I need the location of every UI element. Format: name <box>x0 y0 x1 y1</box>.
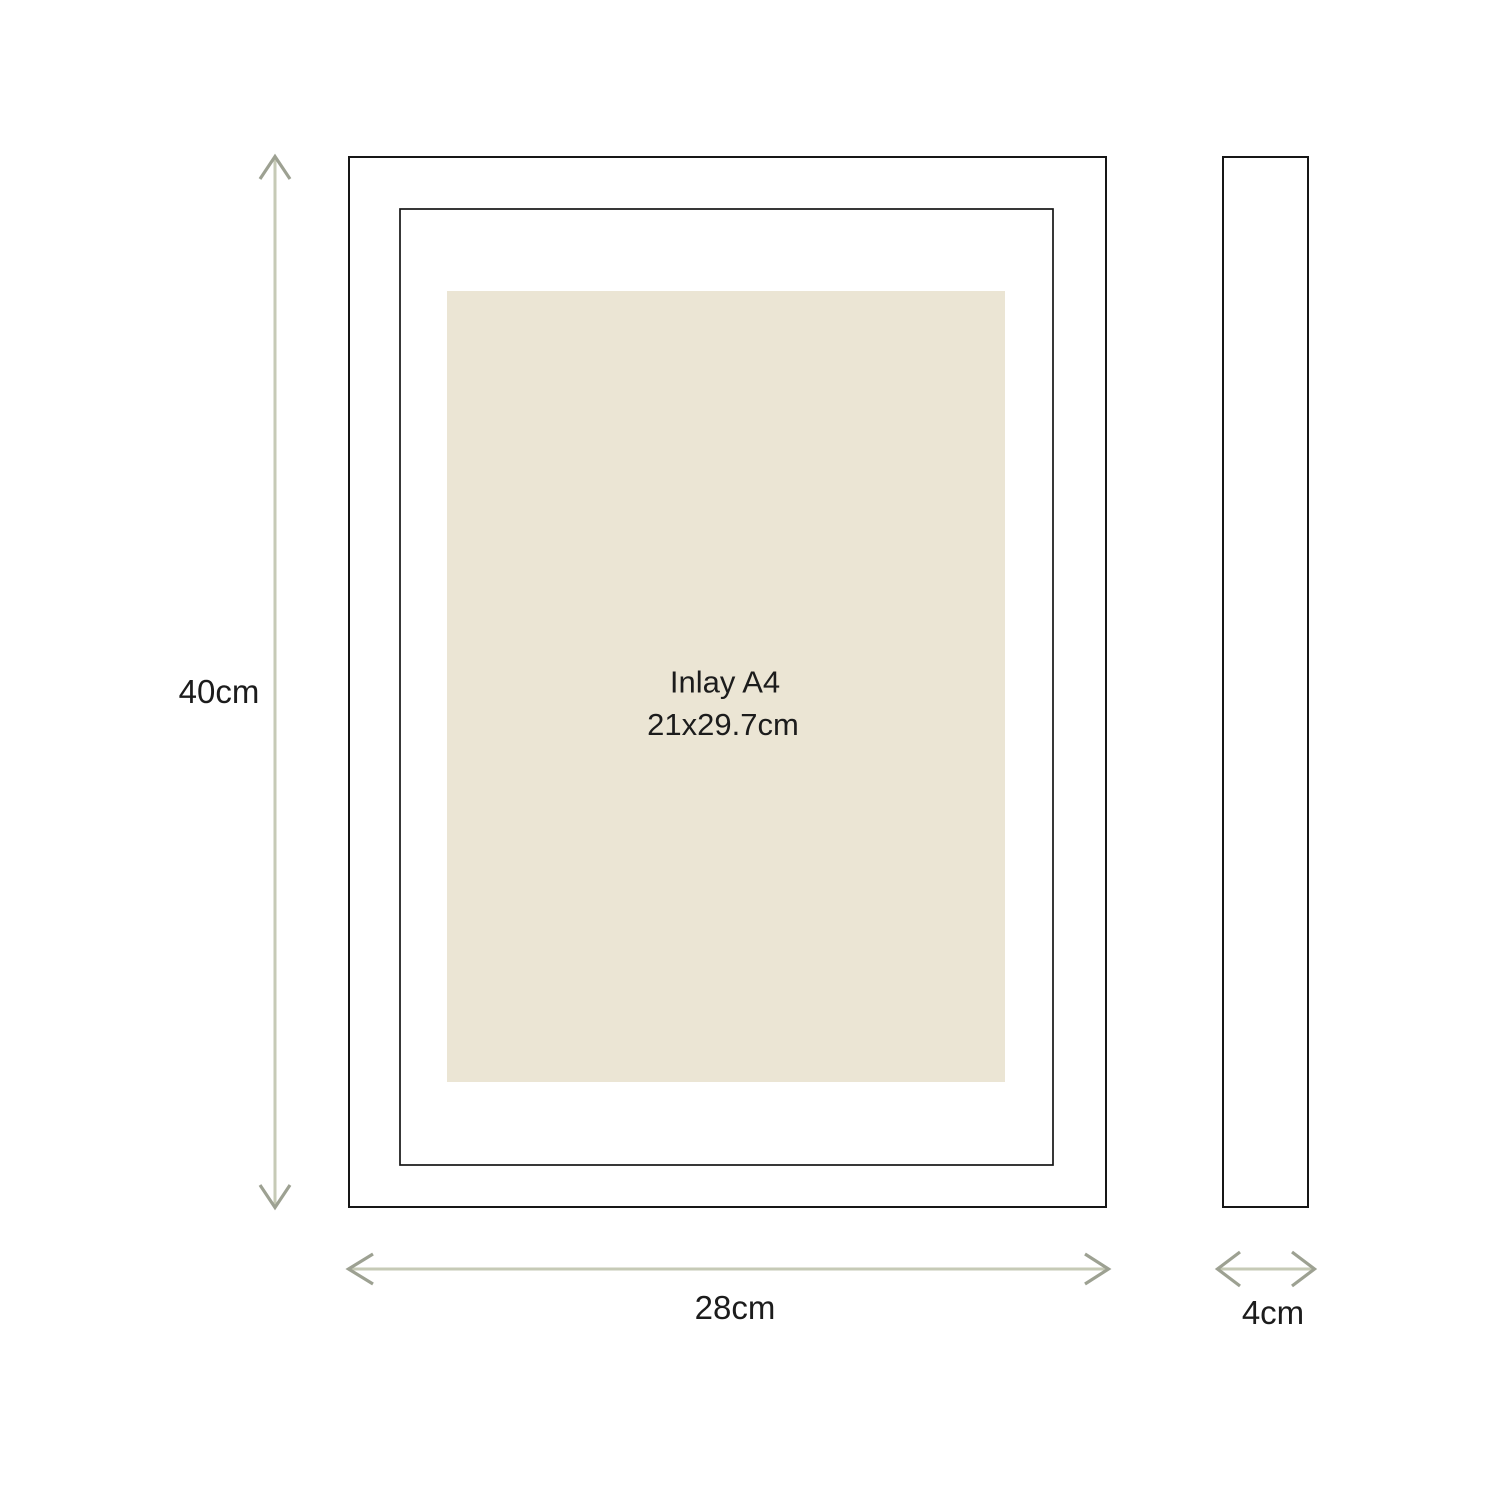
svg-text:40cm: 40cm <box>179 673 260 710</box>
svg-text:28cm: 28cm <box>695 1289 776 1326</box>
svg-text:21x29.7cm: 21x29.7cm <box>647 707 799 742</box>
svg-text:4cm: 4cm <box>1242 1294 1304 1331</box>
svg-text:Inlay A4: Inlay A4 <box>670 665 780 700</box>
